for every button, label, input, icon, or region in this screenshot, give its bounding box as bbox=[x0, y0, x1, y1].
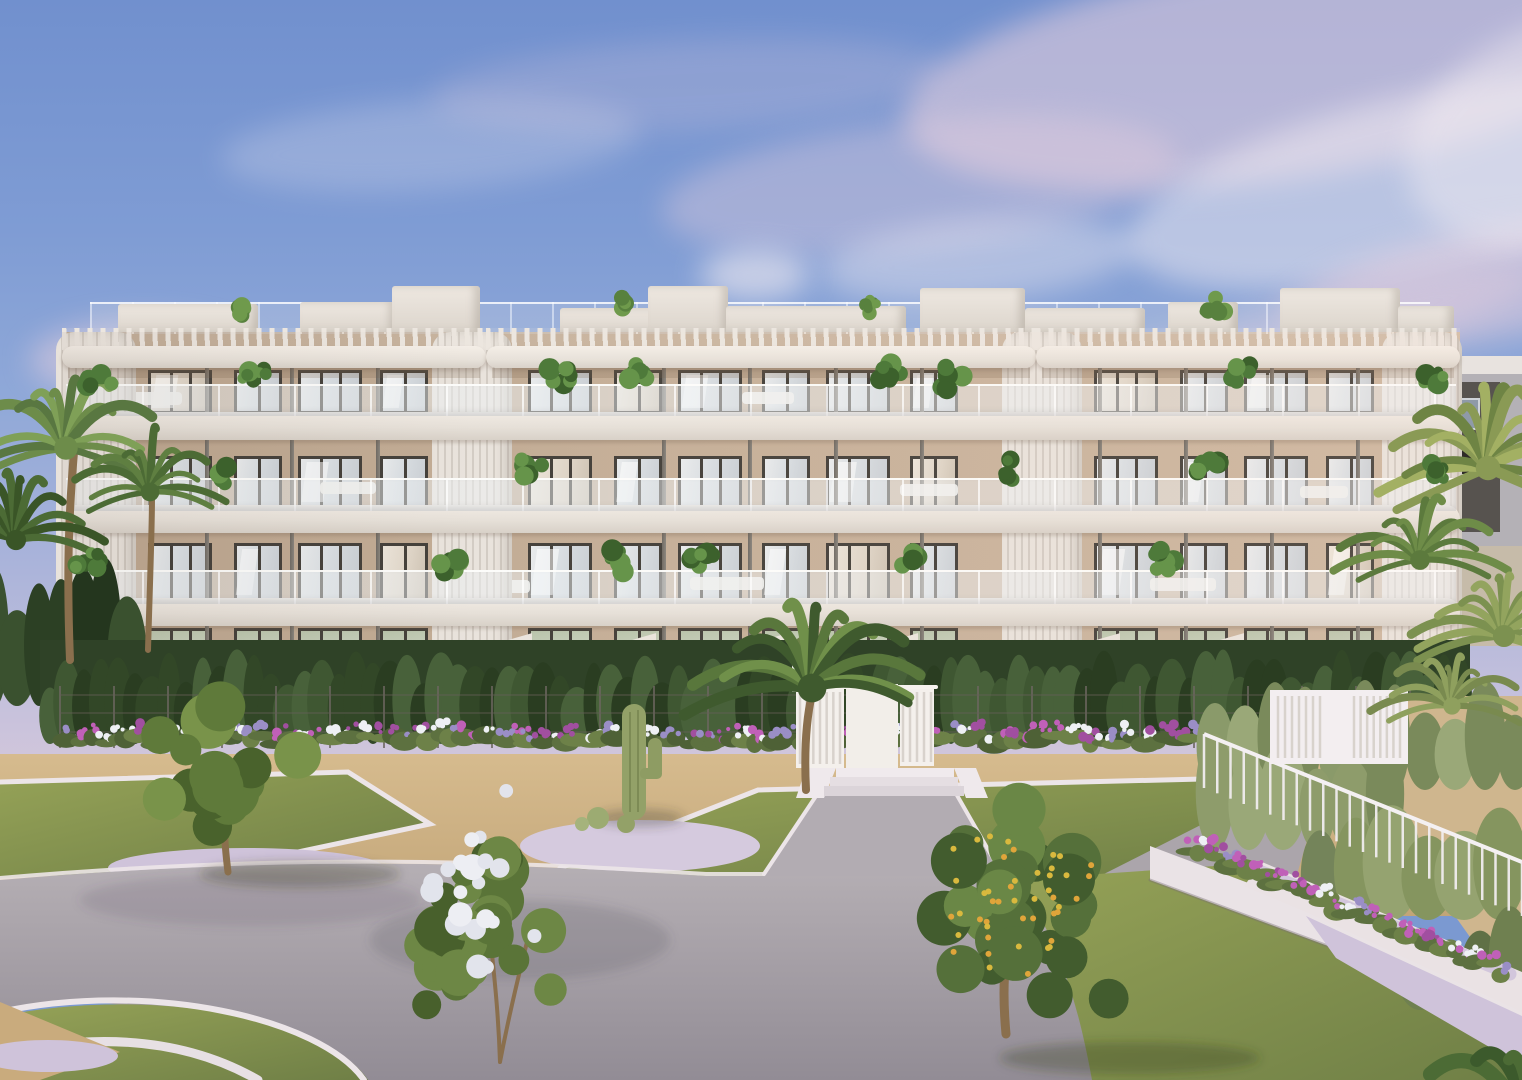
foliage-blob bbox=[992, 783, 1045, 836]
foliage-blob bbox=[447, 549, 469, 571]
fruit-dot bbox=[1050, 852, 1056, 858]
flower-cluster bbox=[1469, 949, 1475, 955]
foliage-blob bbox=[440, 862, 455, 877]
flower-cluster bbox=[490, 726, 494, 730]
flower-cluster bbox=[977, 719, 986, 728]
flower-cluster bbox=[1332, 899, 1336, 903]
fruit-dot bbox=[984, 924, 990, 930]
flower-cluster bbox=[567, 723, 574, 730]
flower-cluster bbox=[1407, 921, 1412, 926]
foliage-blob bbox=[104, 377, 118, 391]
flower-cluster bbox=[503, 730, 510, 737]
flower-cluster bbox=[1292, 871, 1299, 878]
foliage-blob bbox=[539, 358, 561, 380]
flower-cluster bbox=[253, 723, 261, 731]
foliage-blob bbox=[216, 457, 237, 478]
flower-cluster bbox=[1265, 872, 1270, 877]
fruit-dot bbox=[990, 898, 996, 904]
flower-cluster bbox=[1029, 721, 1037, 729]
foliage-blob bbox=[412, 990, 441, 1019]
foliage-blob bbox=[601, 539, 623, 561]
flower-cluster bbox=[1448, 945, 1455, 952]
flower-cluster bbox=[394, 725, 399, 730]
foliage-blob bbox=[232, 306, 247, 321]
foliage-blob bbox=[478, 853, 494, 869]
flower-cluster bbox=[735, 724, 740, 729]
flower-cluster bbox=[1095, 733, 1103, 741]
fruit-dot bbox=[1050, 894, 1056, 900]
flower-cluster bbox=[520, 729, 525, 734]
fruit-dot bbox=[1012, 898, 1018, 904]
cactus-arm-joint bbox=[640, 768, 662, 779]
flower-cluster bbox=[1315, 890, 1323, 898]
foliage-blob bbox=[476, 909, 495, 928]
flower-cluster bbox=[1078, 732, 1088, 742]
fruit-dot bbox=[1011, 847, 1017, 853]
fruit-dot bbox=[948, 914, 954, 920]
foliage-blob bbox=[260, 368, 272, 380]
foliage-blob bbox=[937, 359, 954, 376]
foliage-blob bbox=[1229, 374, 1244, 389]
balcony-plants bbox=[68, 290, 1449, 582]
flower-cluster bbox=[1070, 723, 1078, 731]
flower-cluster bbox=[63, 725, 70, 732]
foliage-blob bbox=[515, 466, 534, 485]
foliage-blob bbox=[448, 902, 472, 926]
flower-cluster bbox=[1237, 860, 1245, 868]
palm-crown bbox=[1476, 456, 1500, 480]
rect-group bbox=[824, 786, 964, 796]
foliage-blob bbox=[1027, 972, 1073, 1018]
foliage-blob bbox=[527, 929, 541, 943]
foliage-blob bbox=[481, 960, 494, 973]
flower-cluster bbox=[353, 721, 358, 726]
foliage-blob bbox=[619, 368, 640, 389]
flower-cluster bbox=[1273, 873, 1278, 878]
flower-cluster bbox=[1421, 932, 1430, 941]
flower-cluster bbox=[532, 732, 539, 739]
fruit-dot bbox=[957, 911, 963, 917]
foliage-blob bbox=[195, 681, 245, 731]
flower-cluster bbox=[91, 723, 96, 728]
flower-cluster bbox=[1040, 728, 1044, 732]
fruit-dot bbox=[953, 878, 959, 884]
flower-cluster bbox=[1219, 842, 1228, 851]
flower-cluster bbox=[726, 727, 730, 731]
flower-cluster bbox=[484, 726, 489, 731]
foliage-blob bbox=[1089, 979, 1129, 1019]
flower-cluster bbox=[1039, 720, 1048, 729]
fruit-dot bbox=[1046, 887, 1052, 893]
rect bbox=[830, 777, 958, 786]
palm-crown bbox=[54, 436, 78, 460]
fruit-dot bbox=[977, 916, 983, 922]
flower-cluster bbox=[1302, 879, 1307, 884]
flower-cluster bbox=[986, 735, 992, 741]
foliage-blob bbox=[1210, 303, 1228, 321]
flower-cluster bbox=[1184, 836, 1191, 843]
fruit-dot bbox=[1064, 872, 1070, 878]
trunk-group bbox=[148, 496, 152, 650]
foliage-blob bbox=[88, 558, 107, 577]
flower-cluster bbox=[1209, 834, 1218, 843]
foliage-blob bbox=[694, 548, 707, 561]
flower-cluster bbox=[1502, 962, 1511, 971]
flower-cluster bbox=[950, 721, 957, 728]
fruit-dot bbox=[955, 932, 961, 938]
flower-cluster bbox=[1372, 905, 1380, 913]
flower-cluster bbox=[1308, 885, 1314, 891]
flower-cluster bbox=[1328, 891, 1333, 896]
foliage-blob bbox=[431, 554, 450, 573]
rect-group bbox=[830, 777, 958, 786]
foliage-blob bbox=[864, 304, 873, 313]
flower-cluster bbox=[134, 727, 142, 735]
palm-crown bbox=[798, 674, 827, 703]
flower-cluster bbox=[1326, 883, 1333, 890]
flower-cluster bbox=[496, 728, 504, 736]
flower-cluster bbox=[283, 723, 289, 729]
foliage-blob bbox=[499, 784, 513, 798]
barrel-cactus bbox=[617, 815, 635, 833]
palm-frond bbox=[16, 537, 96, 554]
tree-trunk bbox=[148, 496, 152, 650]
flower-cluster bbox=[612, 724, 619, 731]
flower-cluster bbox=[660, 732, 667, 739]
palm-group bbox=[1378, 387, 1522, 521]
fruit-dot bbox=[1047, 944, 1053, 950]
slats-group bbox=[1278, 696, 1320, 758]
fruit-dot bbox=[1012, 878, 1018, 884]
foliage-blob bbox=[189, 751, 240, 802]
flower-cluster bbox=[1047, 728, 1052, 733]
fruit-dot bbox=[1056, 904, 1062, 910]
foliage-blob bbox=[939, 381, 952, 394]
flower-cluster bbox=[782, 728, 791, 737]
fruit-dot bbox=[985, 935, 991, 941]
barrel-cactus bbox=[587, 807, 609, 829]
fruit-dot bbox=[974, 837, 980, 843]
foliage-blob bbox=[1200, 307, 1210, 317]
foliage-blob bbox=[1152, 541, 1170, 559]
palm-crown bbox=[1443, 697, 1460, 714]
palm-crown bbox=[1493, 625, 1515, 647]
fruit-dot bbox=[951, 949, 957, 955]
fruit-dot bbox=[1057, 853, 1063, 859]
flower-cluster bbox=[717, 729, 721, 733]
flower-cluster bbox=[705, 731, 712, 738]
foliage-blob bbox=[998, 467, 1011, 480]
palm-crown bbox=[6, 530, 26, 550]
foliage-blob bbox=[959, 375, 969, 385]
flower-cluster bbox=[1223, 851, 1229, 857]
flower-cluster bbox=[1399, 922, 1403, 926]
flower-cluster bbox=[1145, 725, 1155, 735]
fruit-dot bbox=[1049, 865, 1055, 871]
fruit-dot bbox=[1005, 839, 1011, 845]
foliage-blob bbox=[1208, 456, 1225, 473]
hedge-plant bbox=[1196, 734, 1235, 850]
flower-cluster bbox=[650, 726, 659, 735]
foliage-blob bbox=[612, 561, 633, 582]
barrel-cactus bbox=[575, 817, 589, 831]
cactus-body bbox=[622, 704, 646, 820]
foliage-blob bbox=[903, 550, 924, 571]
flower-cluster bbox=[1214, 847, 1219, 852]
palm-frond bbox=[1420, 560, 1488, 577]
flower-cluster bbox=[1353, 897, 1357, 901]
flower-cluster bbox=[1199, 836, 1207, 844]
fruit-dot bbox=[1020, 915, 1026, 921]
foliage-blob bbox=[534, 973, 566, 1005]
foliage-blob bbox=[558, 361, 573, 376]
flower-cluster bbox=[1011, 727, 1019, 735]
flower-cluster bbox=[1492, 950, 1501, 959]
fruit-dot bbox=[950, 846, 956, 852]
flower-cluster bbox=[1204, 844, 1213, 853]
fruit-dot bbox=[1055, 909, 1061, 915]
flower-cluster bbox=[735, 732, 741, 738]
fruit-dot bbox=[987, 965, 993, 971]
flower-cluster bbox=[1459, 946, 1463, 950]
flower-cluster bbox=[388, 729, 394, 735]
flower-cluster bbox=[676, 731, 681, 736]
flower-cluster bbox=[696, 730, 704, 738]
architectural-render-scene bbox=[0, 0, 1522, 1080]
flower-cluster bbox=[1278, 868, 1286, 876]
foliage-blob bbox=[877, 362, 889, 374]
palm-crown bbox=[141, 483, 160, 502]
fruit-dot bbox=[987, 833, 993, 839]
flower-cluster bbox=[511, 723, 518, 730]
foliage-blob bbox=[1160, 562, 1175, 577]
ground-ellipse bbox=[1000, 1042, 1260, 1074]
palm-group bbox=[1333, 498, 1508, 580]
flower-cluster bbox=[379, 730, 383, 734]
foliage-blob bbox=[937, 945, 985, 993]
flower-cluster bbox=[431, 725, 437, 731]
flower-cluster bbox=[457, 726, 464, 733]
flower-cluster bbox=[1081, 724, 1088, 731]
fruit-dot bbox=[1031, 896, 1037, 902]
foliage-blob bbox=[83, 377, 99, 393]
garden-landscape bbox=[0, 0, 1522, 1080]
flower-cluster bbox=[569, 731, 575, 737]
fruit-dot bbox=[1001, 854, 1007, 860]
foliage-blob bbox=[1228, 358, 1246, 376]
flower-cluster bbox=[1438, 940, 1444, 946]
flower-cluster bbox=[1254, 861, 1262, 869]
foliage-blob bbox=[1189, 463, 1200, 474]
flower-cluster bbox=[241, 728, 249, 736]
fruit-dot bbox=[981, 890, 987, 896]
fruit-dot bbox=[1086, 873, 1092, 879]
fruit-dot bbox=[1088, 862, 1094, 868]
fruit-dot bbox=[1016, 944, 1022, 950]
flower-cluster bbox=[1122, 728, 1126, 732]
flower-cluster bbox=[957, 725, 966, 734]
flower-cluster bbox=[1120, 720, 1129, 729]
flower-cluster bbox=[1290, 882, 1297, 889]
flower-cluster bbox=[768, 731, 776, 739]
flower-cluster bbox=[542, 731, 550, 739]
fruit-dot bbox=[1008, 884, 1014, 890]
foliage-blob bbox=[515, 453, 529, 467]
foliage-blob bbox=[988, 926, 1043, 981]
flower-cluster bbox=[346, 726, 350, 730]
fruit-dot bbox=[1034, 870, 1040, 876]
flower-cluster bbox=[1169, 719, 1179, 729]
flower-cluster bbox=[525, 726, 531, 732]
flower-cluster bbox=[1385, 916, 1389, 920]
flower-cluster bbox=[121, 728, 125, 732]
flower-cluster bbox=[362, 725, 369, 732]
flower-cluster bbox=[1109, 738, 1114, 743]
fruit-dot bbox=[1048, 938, 1054, 944]
flower-cluster bbox=[1339, 904, 1344, 909]
flower-cluster bbox=[435, 718, 445, 728]
flower-cluster bbox=[375, 721, 381, 727]
rect bbox=[824, 786, 964, 796]
flower-cluster bbox=[110, 725, 118, 733]
flower-cluster bbox=[1054, 720, 1060, 726]
palm-crown bbox=[1410, 550, 1430, 570]
fruit-dot bbox=[1047, 872, 1053, 878]
foliage-blob bbox=[70, 561, 82, 573]
foliage-blob bbox=[1003, 455, 1013, 465]
flower-cluster bbox=[416, 724, 425, 733]
foliage-blob bbox=[614, 290, 630, 306]
foliage-blob bbox=[274, 732, 321, 779]
flower-cluster bbox=[95, 731, 103, 739]
foliage-blob bbox=[143, 778, 186, 821]
foliage-blob bbox=[454, 885, 468, 899]
flower-cluster bbox=[1361, 903, 1367, 909]
foliage-blob bbox=[1438, 371, 1449, 382]
foliage-blob bbox=[521, 908, 566, 953]
foliage-blob bbox=[534, 458, 549, 473]
flower-cluster bbox=[1407, 928, 1411, 932]
foliage-blob bbox=[423, 873, 443, 893]
foliage-blob bbox=[91, 548, 104, 561]
flower-cluster bbox=[1372, 913, 1377, 918]
rect-group bbox=[836, 768, 954, 777]
fruit-dot bbox=[1025, 971, 1031, 977]
flower-cluster bbox=[316, 727, 321, 732]
foliage-blob bbox=[1043, 860, 1085, 902]
foliage-blob bbox=[499, 945, 530, 976]
flower-cluster bbox=[1364, 910, 1369, 915]
foliage-blob bbox=[1427, 461, 1444, 478]
fruit-dot bbox=[1074, 896, 1080, 902]
foliage-blob bbox=[241, 369, 253, 381]
ellipse-group bbox=[1000, 1042, 1260, 1074]
flower-cluster bbox=[669, 727, 674, 732]
fruit-dot bbox=[1030, 915, 1036, 921]
flower-cluster bbox=[1477, 950, 1486, 959]
flower-cluster bbox=[790, 724, 796, 730]
fruit-dot bbox=[996, 899, 1002, 905]
foliage-blob bbox=[464, 832, 479, 847]
rect bbox=[836, 768, 954, 777]
fruit-dot bbox=[985, 951, 991, 957]
flower-cluster bbox=[1127, 729, 1134, 736]
